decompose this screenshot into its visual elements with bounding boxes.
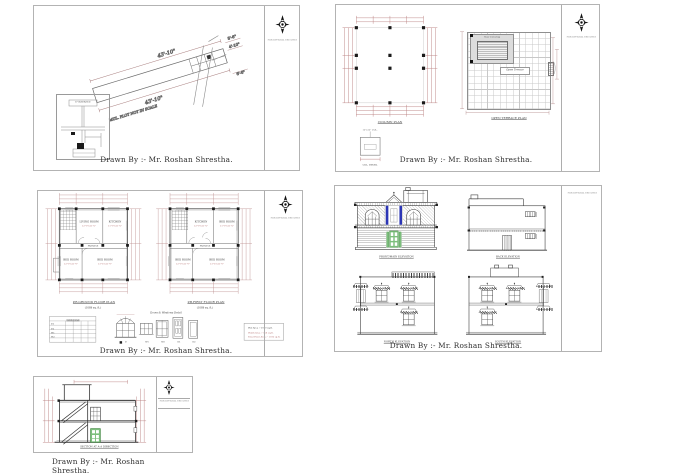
sheet-section: SECTION AT A-A DIRECTION FOR OFFICIAL US… xyxy=(33,376,193,453)
room-label: BED ROOM xyxy=(200,259,234,262)
elevation-label-back: BACK ELEVATION xyxy=(491,256,525,259)
schedule-row: W2 xyxy=(51,336,55,338)
schedule-row: D2 xyxy=(51,328,54,330)
titleblock-text: FOR OFFICIAL USE ONLY xyxy=(268,39,297,41)
compass-icon xyxy=(574,13,589,32)
plot-dim-c: 6'-6" xyxy=(236,70,246,76)
column-detail xyxy=(360,131,380,161)
room-label: PASSAGE xyxy=(191,245,220,247)
titleblock-divider xyxy=(156,377,157,452)
room-dim: 11'-0"x11'-6" xyxy=(101,225,130,227)
sheet-column-terrace: Stair Covering Open Terrace xyxy=(335,4,600,172)
room-dim: 13'-6"x11'-0" xyxy=(91,263,120,265)
room-label: KITCHEN xyxy=(98,221,132,224)
room-dim: 11'-0"x11'-6" xyxy=(213,225,242,227)
back-elevation xyxy=(467,195,547,250)
sheet-elevations: FRONT/MAIN ELEVATION BACK ELEVATION NORT… xyxy=(334,185,602,352)
detail-tag: D2 xyxy=(180,341,209,343)
titleblock-divider xyxy=(264,6,265,170)
location-inset-map: E-GUIDANCE xyxy=(56,94,110,160)
titleblock-divider xyxy=(561,5,562,171)
room-label: BED ROOM xyxy=(166,259,200,262)
drawn-by: Drawn By :- Mr. Roshan Shrestha. xyxy=(91,346,241,355)
section-label: SECTION AT A-A DIRECTION xyxy=(80,446,114,449)
room-dim: 12'-0"x11'-6" xyxy=(75,225,104,227)
plan-subtitle-ground: (1089 sq. ft.) xyxy=(76,307,110,310)
room-label: BED ROOM xyxy=(88,259,122,262)
room-label: BED ROOM xyxy=(210,221,244,224)
compass-icon xyxy=(163,380,175,395)
terrace-plan-label: OPEN TERRACE PLAN xyxy=(489,117,529,120)
plan-title-first: P.B.FIRST FLOOR PLAN xyxy=(176,301,236,304)
titleblock-text: FOR OFFICIAL USE ONLY xyxy=(160,400,189,402)
compass-icon xyxy=(275,15,290,34)
details-heading: Doors & Windows Detail xyxy=(149,312,183,315)
note-line: Plot Area :- 1089 sq.ft. xyxy=(248,327,273,329)
col-detail-note: 12"x12" COL. xyxy=(356,129,385,131)
drawn-by: Drawn By :- Mr. Roshan Shrestha. xyxy=(381,341,531,350)
schedule-title: SCHEDULE xyxy=(58,319,87,321)
column-plan xyxy=(343,16,438,117)
terrace-dimensions xyxy=(460,32,559,115)
front-elevation xyxy=(354,187,438,249)
room-dim: 12'-0"x11'-0" xyxy=(169,263,198,265)
drawn-by: Drawn By :- Mr. Roshan Shrestha. xyxy=(89,155,244,164)
elevation-label-front: FRONT/MAIN ELEVATION xyxy=(379,256,413,259)
inset-title: E-GUIDANCE xyxy=(69,101,98,103)
site-plot: 43'-10" 43'-10" 8'-6" 4'-10" 6'-6" MUL. … xyxy=(88,29,252,124)
section-structure xyxy=(55,385,139,444)
note-line: Plinth Area :- 968 sq.ft. xyxy=(248,332,274,334)
schedule-row: D1 xyxy=(51,323,54,325)
sheet-floor-plans: LIVING ROOM 12'-0"x11'-6" KITCHEN 11'-0"… xyxy=(37,190,303,357)
sheet-site-plan: 43'-10" 43'-10" 8'-6" 4'-10" 6'-6" MUL. … xyxy=(33,5,300,171)
titleblock-divider xyxy=(264,191,265,356)
room-dim: 13'-6"x11'-0" xyxy=(203,263,232,265)
plot-dim-a: 8'-6" xyxy=(227,34,237,40)
column-plan-label: COLUMN PLAN xyxy=(370,121,410,124)
col-detail-label: COL. DETAIL xyxy=(356,164,385,166)
drawn-by: Drawn By :- Mr. Roshan Shrestha. xyxy=(52,457,172,475)
inset-map-drawing xyxy=(57,95,109,159)
room-dim: 12'-0"x11'-6" xyxy=(187,225,216,227)
room-label: PASSAGE xyxy=(79,245,108,247)
titleblock-text: FOR OFFICIAL USE ONLY xyxy=(271,217,300,219)
plan-subtitle-first: (1089 sq. ft.) xyxy=(188,307,222,310)
road-lines xyxy=(194,36,227,107)
schedule-row: W1 xyxy=(51,332,55,334)
canvas: 43'-10" 43'-10" 8'-6" 4'-10" 6'-6" MUL. … xyxy=(0,0,680,476)
plan-title-ground: P.B.GROUND FLOOR PLAN xyxy=(64,301,124,304)
plot-dim-top: 43'-10" xyxy=(156,48,176,59)
titleblock-divider xyxy=(561,186,562,351)
room-label: BED ROOM xyxy=(54,259,88,262)
plot-note: MUL. PLOT NOT IN SCALE xyxy=(108,104,158,123)
titleblock-text: FOR OFFICIAL USE ONLY xyxy=(567,36,596,38)
titleblock-text: FOR OFFICIAL USE ONLY xyxy=(568,192,597,194)
south-elevation xyxy=(466,265,551,334)
north-elevation xyxy=(353,272,437,334)
opening-details xyxy=(115,315,198,344)
structural-drawing xyxy=(336,5,599,171)
room-dim: 12'-0"x11'-0" xyxy=(57,263,86,265)
compass-icon xyxy=(278,195,293,214)
drawn-by: Drawn By :- Mr. Roshan Shrestha. xyxy=(391,155,541,164)
